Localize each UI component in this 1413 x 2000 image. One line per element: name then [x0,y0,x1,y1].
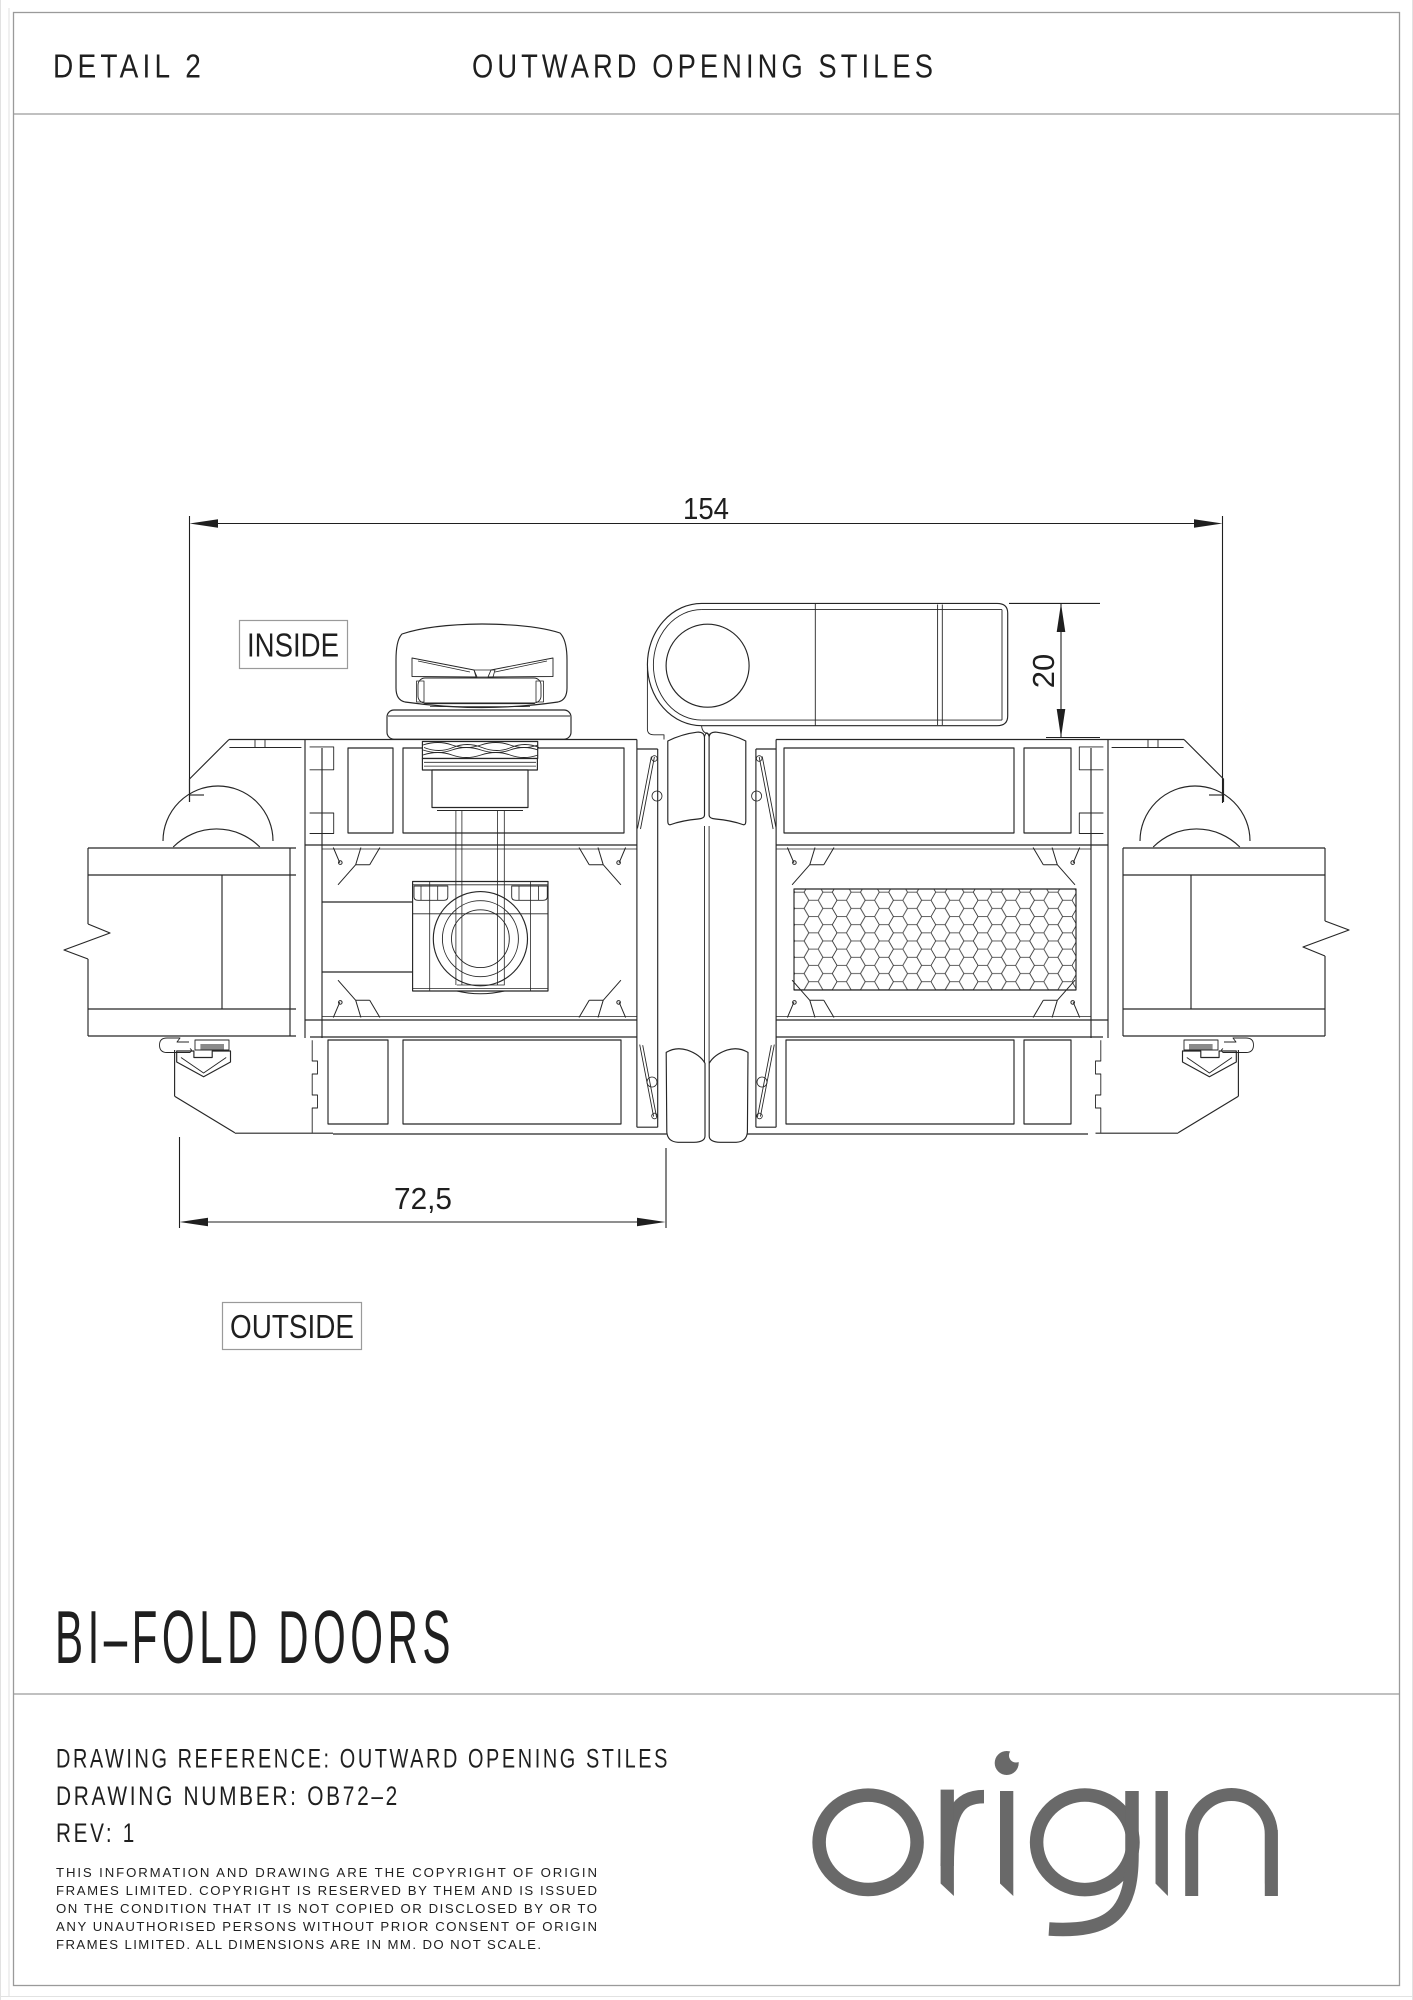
svg-text:OUTSIDE: OUTSIDE [230,1308,354,1345]
svg-text:DETAIL 2: DETAIL 2 [53,49,205,86]
svg-text:ANY UNAUTHORISED PERSONS WITHO: ANY UNAUTHORISED PERSONS WITHOUT PRIOR C… [56,1919,597,1934]
svg-text:ON THE CONDITION THAT IT IS NO: ON THE CONDITION THAT IT IS NOT COPIED O… [56,1901,597,1916]
svg-text:OUTWARD OPENING STILES: OUTWARD OPENING STILES [472,49,937,86]
svg-text:BI–FOLD DOORS: BI–FOLD DOORS [55,1595,455,1679]
svg-text:72,5: 72,5 [394,1181,452,1216]
svg-text:DRAWING NUMBER: OB72–2: DRAWING NUMBER: OB72–2 [56,1781,400,1811]
svg-text:20: 20 [1026,654,1061,688]
svg-text:REV: 1: REV: 1 [56,1818,137,1848]
svg-text:154: 154 [683,491,729,526]
svg-text:INSIDE: INSIDE [247,627,339,664]
svg-text:DRAWING REFERENCE: OUTWARD OPE: DRAWING REFERENCE: OUTWARD OPENING STILE… [56,1744,670,1774]
svg-text:THIS INFORMATION AND DRAWING A: THIS INFORMATION AND DRAWING ARE THE COP… [56,1865,597,1880]
svg-text:FRAMES LIMITED. ALL DIMENSIONS: FRAMES LIMITED. ALL DIMENSIONS ARE IN MM… [56,1937,541,1952]
svg-text:FRAMES LIMITED. COPYRIGHT IS R: FRAMES LIMITED. COPYRIGHT IS RESERVED BY… [56,1883,597,1898]
